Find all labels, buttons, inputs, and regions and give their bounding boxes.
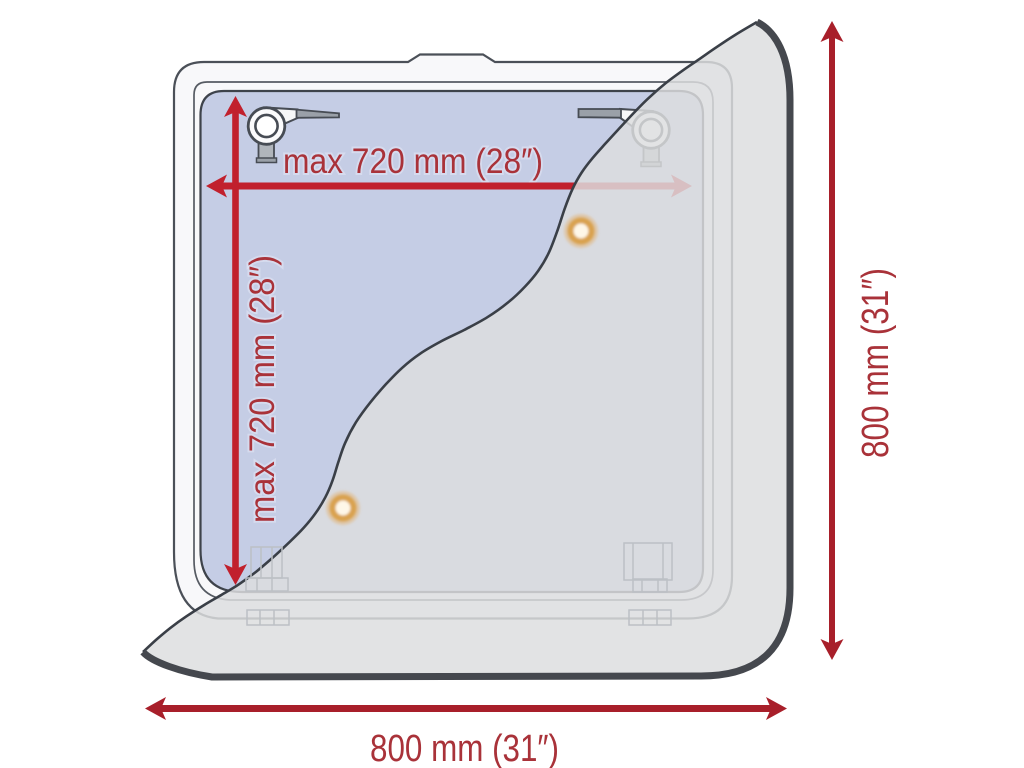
svg-text:max 720 mm (28″): max 720 mm (28″) <box>283 142 543 181</box>
svg-text:max 720 mm (28″): max 720 mm (28″) <box>243 255 282 523</box>
svg-text:800 mm (31″): 800 mm (31″) <box>370 728 559 768</box>
svg-text:800 mm (31″): 800 mm (31″) <box>855 268 897 458</box>
